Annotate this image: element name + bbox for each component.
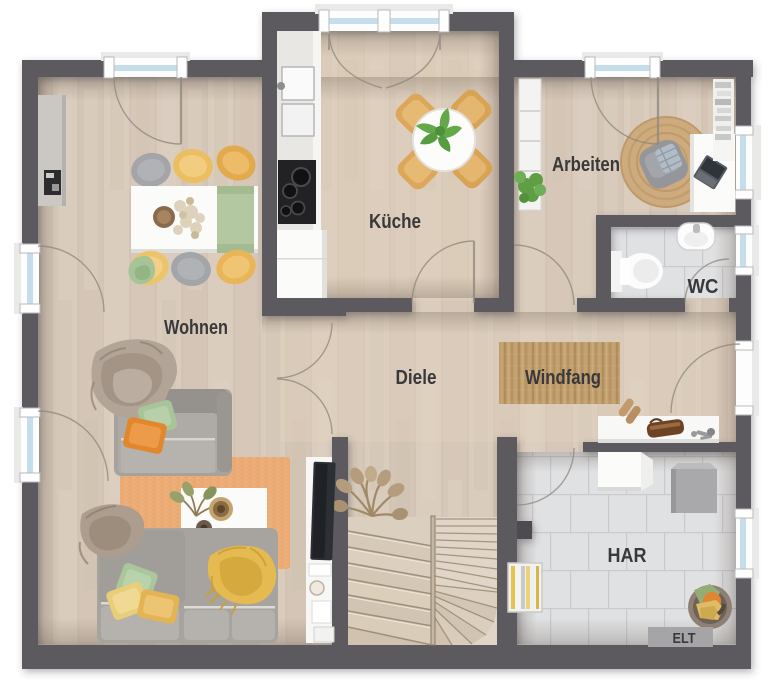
svg-text:ELT: ELT: [673, 630, 696, 647]
svg-text:Windfang: Windfang: [525, 367, 601, 389]
svg-text:Arbeiten: Arbeiten: [552, 154, 620, 176]
svg-text:Diele: Diele: [396, 367, 437, 389]
svg-text:Küche: Küche: [369, 211, 421, 233]
svg-text:HAR: HAR: [608, 545, 647, 567]
svg-text:Wohnen: Wohnen: [164, 317, 228, 339]
svg-text:WC: WC: [688, 276, 719, 298]
